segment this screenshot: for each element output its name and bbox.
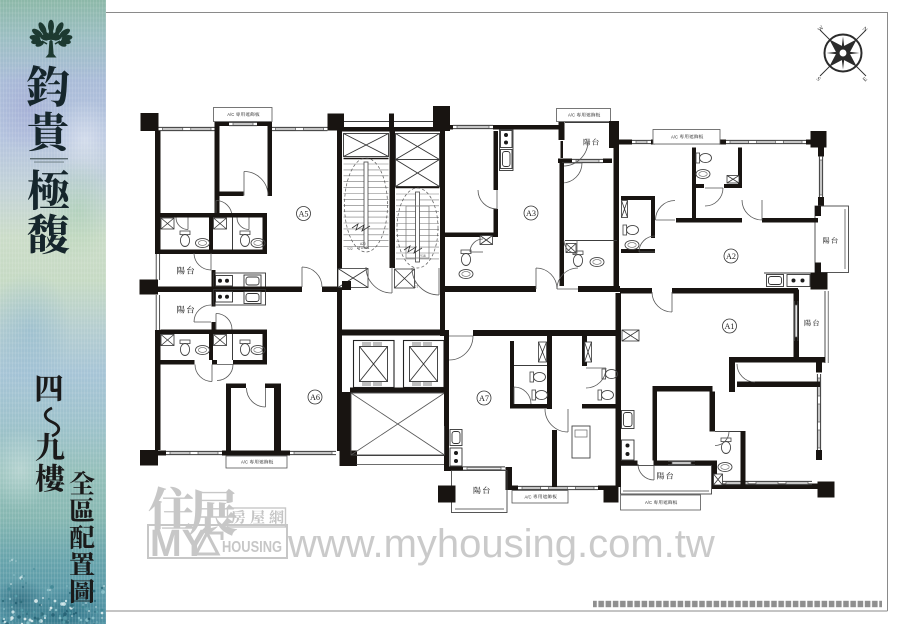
svg-text:A7: A7 xyxy=(479,394,489,403)
svg-text:A/C: A/C xyxy=(645,500,652,505)
svg-text:A/C: A/C xyxy=(227,112,234,117)
svg-text:A1: A1 xyxy=(724,322,734,331)
svg-text:A/C: A/C xyxy=(568,113,575,118)
svg-text:9FU 421: 9FU 421 xyxy=(357,246,369,250)
svg-text:E: E xyxy=(862,76,869,83)
svg-text:W: W xyxy=(817,25,825,33)
svg-text:Y22: Y22 xyxy=(347,247,353,251)
svg-text:N: N xyxy=(861,26,869,34)
svg-text:A5: A5 xyxy=(298,209,308,218)
svg-text:A/C: A/C xyxy=(671,134,678,139)
svg-text:S: S xyxy=(815,76,822,83)
svg-text:A/C: A/C xyxy=(525,494,532,499)
svg-text:Y16: Y16 xyxy=(420,254,426,258)
svg-text:MY: MY xyxy=(150,523,207,565)
svg-text:HOUSING: HOUSING xyxy=(222,539,282,556)
svg-text:A2: A2 xyxy=(726,252,736,261)
svg-text:A3: A3 xyxy=(526,209,536,218)
svg-text:A6: A6 xyxy=(310,393,320,402)
svg-text:www.myhousing.com.tw: www.myhousing.com.tw xyxy=(287,522,715,566)
svg-text:A/C: A/C xyxy=(241,460,248,465)
